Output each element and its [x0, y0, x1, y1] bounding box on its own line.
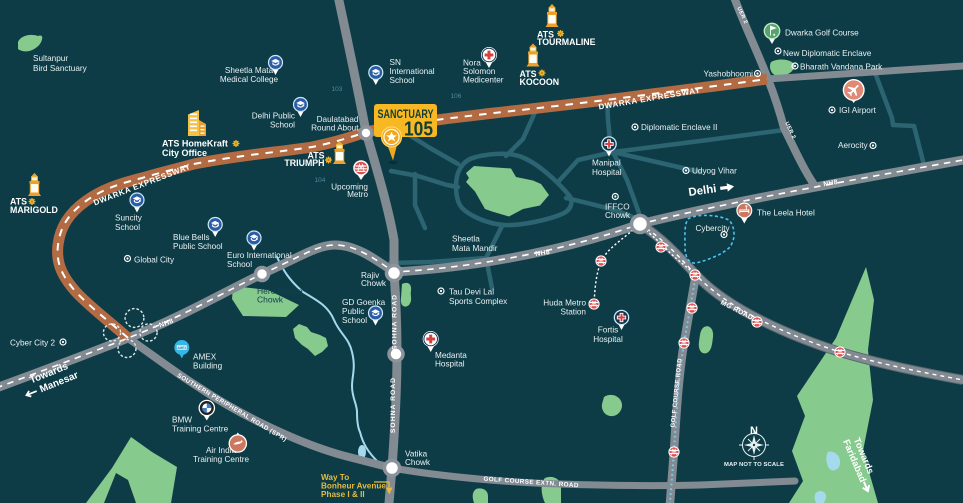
svg-text:Public School: Public School: [173, 242, 223, 251]
svg-text:Sultanpur: Sultanpur: [33, 54, 68, 63]
svg-text:TOURMALINE: TOURMALINE: [537, 37, 596, 47]
svg-text:Station: Station: [561, 308, 587, 317]
svg-text:Blue Bells: Blue Bells: [173, 233, 209, 242]
svg-text:Mata Mandir: Mata Mandir: [452, 244, 498, 253]
svg-text:School: School: [227, 260, 252, 269]
svg-text:Udyog Vihar: Udyog Vihar: [692, 167, 737, 176]
svg-text:IGI Airport: IGI Airport: [839, 106, 877, 115]
svg-text:Medical College: Medical College: [220, 75, 279, 84]
svg-text:Manipal: Manipal: [592, 159, 621, 168]
svg-text:MAP NOT TO SCALE: MAP NOT TO SCALE: [724, 462, 784, 468]
svg-text:N: N: [750, 425, 758, 437]
svg-text:103: 103: [332, 86, 343, 93]
svg-text:International: International: [390, 67, 435, 76]
svg-text:School: School: [270, 121, 295, 130]
svg-text:Hospital: Hospital: [435, 360, 465, 369]
svg-text:School: School: [115, 223, 140, 232]
svg-text:City Office: City Office: [162, 148, 207, 158]
svg-text:Bharath Vandana Park: Bharath Vandana Park: [800, 63, 883, 72]
svg-text:Training Centre: Training Centre: [193, 455, 250, 464]
svg-text:Global City: Global City: [134, 256, 175, 265]
svg-text:Hospital: Hospital: [592, 168, 622, 177]
svg-text:105: 105: [404, 119, 433, 141]
svg-text:Building: Building: [193, 362, 223, 371]
svg-text:Aerocity: Aerocity: [838, 141, 868, 150]
svg-text:Bird Sanctuary: Bird Sanctuary: [33, 64, 88, 73]
svg-text:Diplomatic Enclave II: Diplomatic Enclave II: [641, 123, 717, 132]
svg-text:KOCOON: KOCOON: [520, 77, 560, 87]
svg-text:106: 106: [451, 93, 462, 100]
svg-text:Chowk: Chowk: [405, 458, 431, 467]
svg-text:Chowk: Chowk: [257, 295, 284, 305]
svg-text:SOHNA ROAD: SOHNA ROAD: [390, 377, 397, 433]
svg-text:Delhi Public: Delhi Public: [252, 112, 295, 121]
svg-text:Sports Complex: Sports Complex: [449, 297, 507, 306]
svg-text:Huda Metro: Huda Metro: [543, 299, 586, 308]
svg-text:Chowk: Chowk: [361, 279, 387, 288]
svg-text:SN: SN: [390, 58, 401, 67]
svg-text:Tau Devi Lal: Tau Devi Lal: [449, 288, 494, 297]
svg-text:Round About: Round About: [311, 124, 359, 133]
svg-text:The Leela Hotel: The Leela Hotel: [757, 209, 815, 218]
svg-text:Phase I & II: Phase I & II: [321, 490, 365, 499]
svg-text:TRIUMPH: TRIUMPH: [284, 158, 324, 168]
svg-text:Sheetla: Sheetla: [452, 235, 480, 244]
svg-text:AMEX: AMEX: [193, 353, 217, 362]
svg-text:Fortis: Fortis: [598, 326, 618, 335]
svg-text:Sheetla Mata: Sheetla Mata: [225, 66, 274, 75]
svg-text:School: School: [342, 316, 367, 325]
svg-text:104: 104: [315, 177, 326, 184]
svg-text:School: School: [390, 76, 415, 85]
svg-text:Metro: Metro: [347, 190, 368, 199]
svg-text:Suncity: Suncity: [115, 214, 143, 223]
svg-text:Medicenter: Medicenter: [463, 76, 504, 85]
svg-text:MARIGOLD: MARIGOLD: [10, 205, 58, 215]
svg-text:Yashobhoomi: Yashobhoomi: [704, 70, 754, 79]
svg-text:Cyber City 2: Cyber City 2: [10, 339, 55, 348]
svg-text:SOHNA ROAD: SOHNA ROAD: [392, 294, 399, 350]
svg-text:GD Goenka: GD Goenka: [342, 298, 386, 307]
svg-text:New Diplomatic Enclave: New Diplomatic Enclave: [783, 49, 872, 58]
svg-text:Euro International: Euro International: [227, 251, 292, 260]
svg-text:BMW: BMW: [172, 416, 192, 425]
svg-text:Hospital: Hospital: [593, 335, 623, 344]
svg-text:Chowk: Chowk: [605, 211, 631, 220]
svg-text:Training Centre: Training Centre: [172, 425, 229, 434]
svg-text:Dwarka Golf Course: Dwarka Golf Course: [785, 29, 859, 38]
svg-text:Public: Public: [342, 307, 364, 316]
svg-text:AMEX: AMEX: [177, 346, 187, 350]
svg-text:ATS HomeKraft: ATS HomeKraft: [162, 139, 228, 149]
